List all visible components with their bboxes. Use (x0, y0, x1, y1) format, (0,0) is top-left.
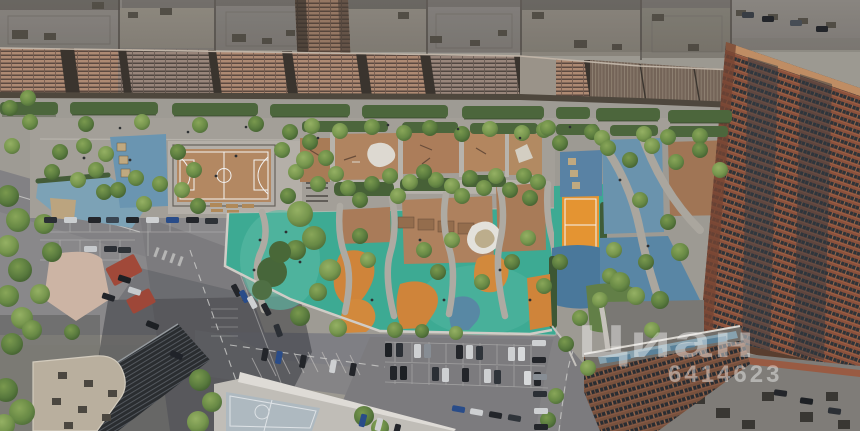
svg-text:Циан: Циан (578, 316, 757, 367)
svg-text:6414623: 6414623 (668, 361, 782, 388)
